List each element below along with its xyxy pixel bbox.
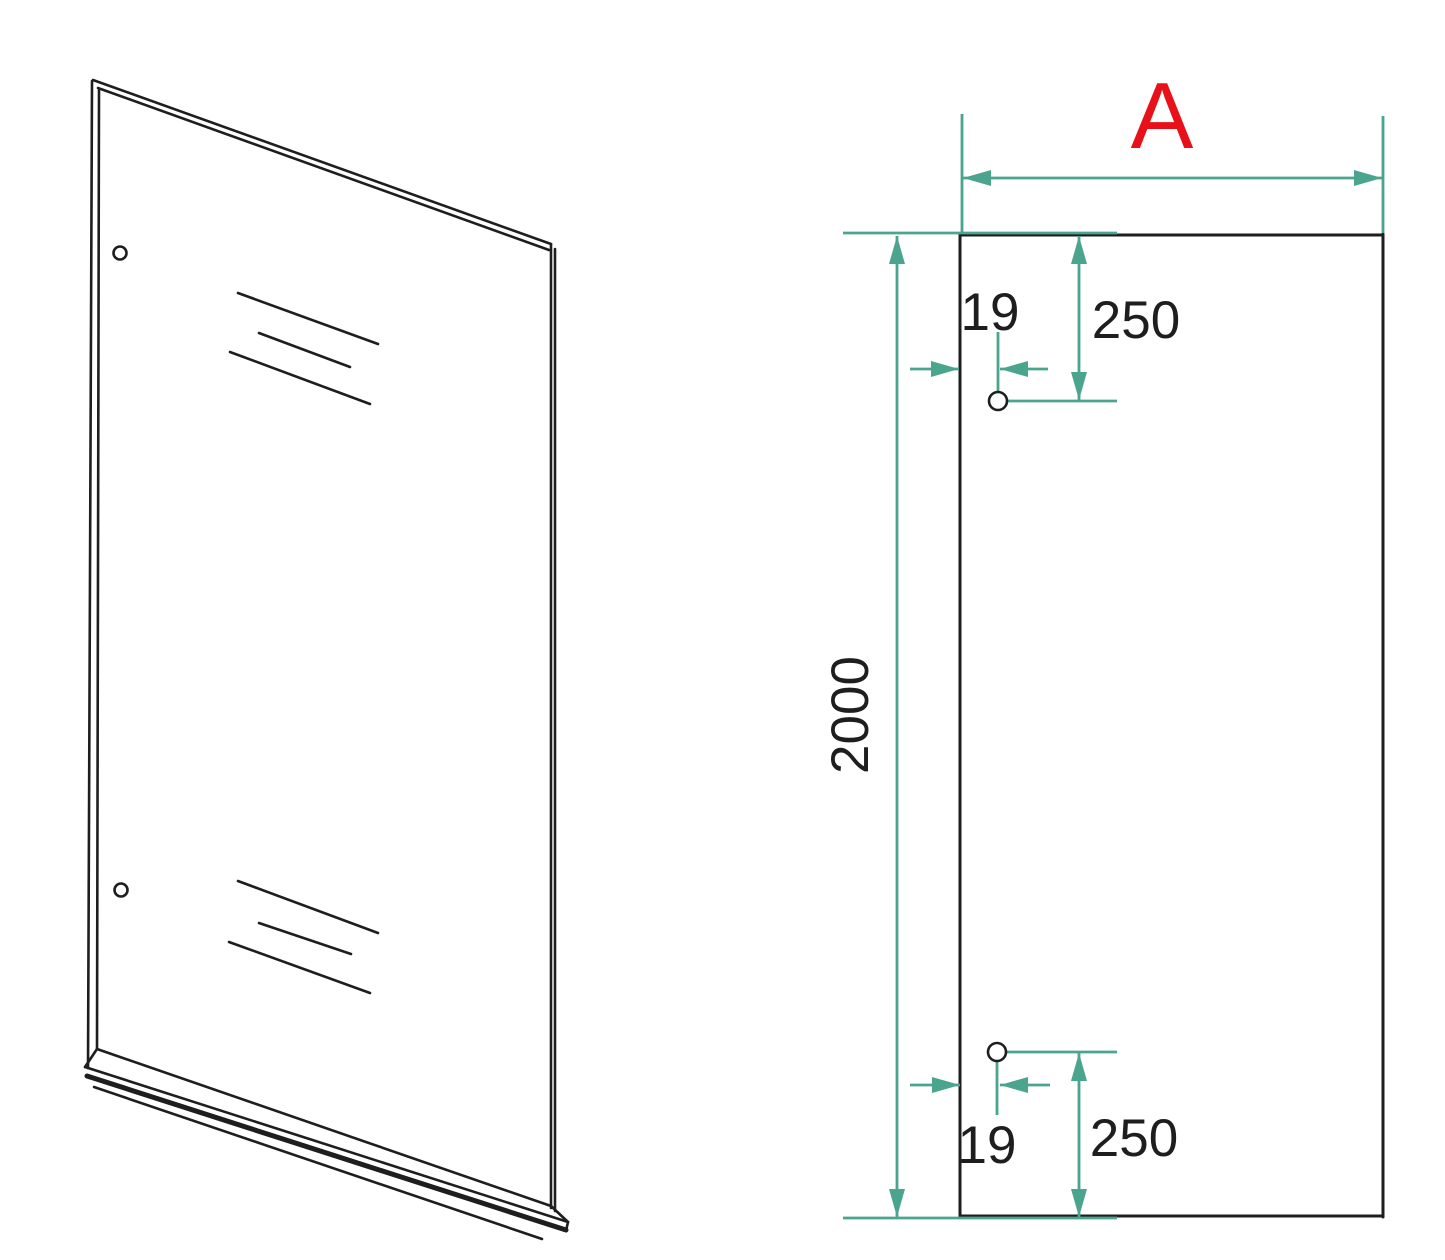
bottom-rail: [85, 1049, 568, 1239]
front-view: A 2000 19 250 19 250: [821, 63, 1383, 1218]
top-hole-edge-offset-label: 19: [961, 283, 1020, 342]
panel-outline: [960, 234, 1383, 1217]
mounting-hole-top: [989, 392, 1007, 410]
height-dimension-label: 2000: [821, 656, 880, 774]
mounting-hole-bottom-perspective: [115, 884, 128, 897]
technical-drawing: A 2000 19 250 19 250: [0, 0, 1445, 1260]
glass-panel-edges: [88, 80, 555, 1211]
top-hole-dimensions: 19 250: [910, 236, 1180, 401]
bottom-hole-edge-offset-label: 19: [958, 1116, 1017, 1175]
width-dimension-label: A: [1131, 63, 1194, 168]
width-dimension: A: [962, 63, 1383, 233]
bottom-hole-bottom-offset-label: 250: [1090, 1109, 1178, 1168]
perspective-view: [85, 80, 568, 1239]
reflection-marks-lower: [229, 881, 378, 993]
mounting-hole-top-perspective: [114, 247, 127, 260]
bottom-hole-dimensions: 19 250: [910, 1052, 1178, 1217]
mounting-hole-bottom: [988, 1043, 1006, 1061]
height-dimension: 2000: [821, 233, 1117, 1218]
reflection-marks-upper: [230, 293, 378, 404]
drawing-canvas: A 2000 19 250 19 250: [0, 0, 1445, 1260]
top-hole-top-offset-label: 250: [1092, 291, 1180, 350]
